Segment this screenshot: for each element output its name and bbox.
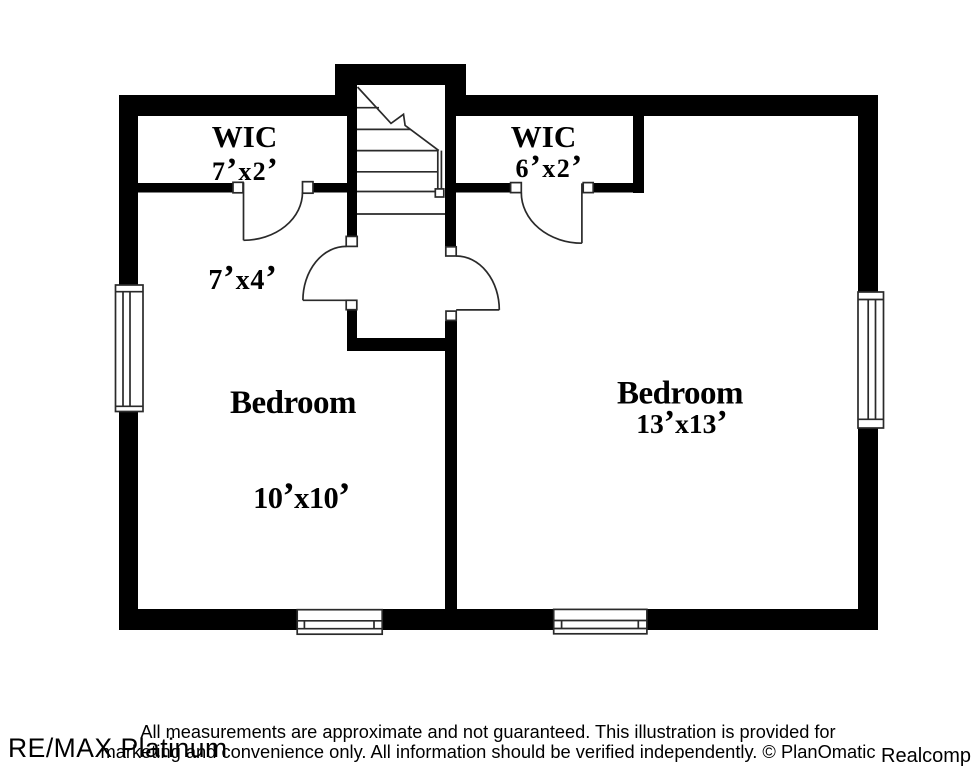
svg-text:10’x10’: 10’x10’ [253, 476, 350, 517]
svg-text:marketing and convenience only: marketing and convenience only. All info… [101, 741, 876, 762]
svg-text:13’x13’: 13’x13’ [636, 404, 727, 441]
svg-text:7’x2’: 7’x2’ [212, 152, 279, 188]
svg-text:Bedroom: Bedroom [230, 385, 356, 421]
svg-text:Realcomp: Realcomp [881, 745, 971, 767]
svg-text:All measurements are approxima: All measurements are approximate and not… [140, 722, 835, 742]
svg-text:WIC: WIC [511, 119, 576, 154]
svg-text:WIC: WIC [212, 119, 277, 154]
svg-text:6’x2’: 6’x2’ [516, 149, 584, 185]
